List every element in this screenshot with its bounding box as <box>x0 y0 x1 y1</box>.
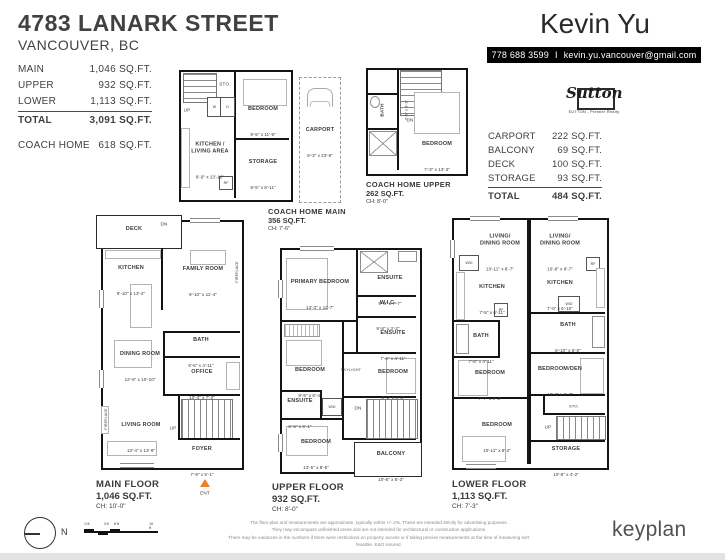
coach-main-label: COACH HOME MAIN 356 SQ.FT. CH: 7'-6" <box>268 207 346 233</box>
wall <box>163 331 165 358</box>
wall <box>234 72 236 198</box>
row-value: 93 SQ.FT. <box>557 173 602 184</box>
compass-icon <box>24 517 56 549</box>
room-label-bedroom: BEDROOM 7'-7" x 9'-3" <box>475 351 505 401</box>
wall <box>543 413 605 415</box>
row-label: CARPORT <box>488 131 536 142</box>
wall <box>342 320 344 440</box>
row-label: TOTAL <box>18 115 52 126</box>
room-label-living-dining: LIVING/ DINING ROOM 10'-11" x 8'-7" <box>480 214 520 271</box>
desk-icon <box>226 362 240 390</box>
room-label-office: OFFICE 10'-3" x 7'-3" <box>189 350 215 400</box>
washer-dryer-icon: W/D <box>459 255 479 271</box>
storage-annotation: STO. <box>219 82 230 87</box>
keyplan-wordmark: keyplan <box>612 518 686 541</box>
scale-tick-label: 0 ft <box>84 522 89 526</box>
area-row-upper: UPPER932 SQ.FT. <box>18 80 152 91</box>
window-marker <box>190 218 220 223</box>
compass-north-label: N <box>61 527 68 537</box>
up-annotation: UP <box>184 108 191 113</box>
dryer-icon: D <box>220 97 235 117</box>
row-value: 618 SQ.FT. <box>98 140 152 151</box>
room-label-storage: STORAGE 10'-8" x 4'-2" <box>552 427 581 477</box>
scale-bar: 0 ft 3 ft 6 ft 10 ft <box>84 522 158 536</box>
contact-bar: 778 688 3599 I kevin.yu.vancouver@gmail.… <box>487 47 701 63</box>
main-floor-label: MAIN FLOOR 1,046 SQ.FT. CH: 10'-0" <box>96 479 159 511</box>
lower-floor-label: LOWER FLOOR 1,113 SQ.FT. CH: 7'-3" <box>452 479 527 511</box>
row-value: 484 SQ.FT. <box>552 191 602 202</box>
area-row-carport: CARPORT222 SQ.FT. <box>488 131 602 142</box>
contact-separator: I <box>555 50 558 60</box>
scale-tick-label: 10 ft <box>149 522 155 530</box>
storage-annotation: STO. <box>569 404 579 409</box>
area-row-balcony: BALCONY69 SQ.FT. <box>488 145 602 156</box>
area-row-total-right: TOTAL484 SQ.FT. <box>488 191 602 202</box>
window-marker <box>450 240 455 258</box>
floorplan-sheet: 4783 LANARK STREET VANCOUVER, BC Kevin Y… <box>0 0 725 560</box>
row-label: MAIN <box>18 64 44 75</box>
wall <box>163 356 165 396</box>
dn-annotation: DN <box>160 222 167 227</box>
window-marker <box>300 246 334 251</box>
room-label-primary-bedroom: PRIMARY BEDROOM 13'-3" x 11'-7" <box>291 260 349 310</box>
row-value: 1,113 SQ.FT. <box>90 96 152 107</box>
shower-icon <box>369 131 397 156</box>
window-marker <box>99 370 104 388</box>
wall <box>368 93 399 95</box>
ent-annotation: ENT <box>200 491 210 496</box>
room-label-kitchen: KITCHEN 8'-10" x 13'-2" <box>117 246 145 296</box>
skylight-annotation: SKYLIGHT <box>341 368 361 372</box>
area-row-coach-home: COACH HOME618 SQ.FT. <box>18 140 152 151</box>
row-value: 1,046 SQ.FT. <box>89 64 152 75</box>
disclaimer: The floor plan and measurements are appr… <box>228 519 530 548</box>
table-divider <box>18 111 152 112</box>
entrance-marker-icon <box>200 479 210 487</box>
wall <box>368 128 399 130</box>
row-value: 100 SQ.FT. <box>552 159 602 170</box>
scale-tick-label: 6 ft <box>114 522 119 526</box>
row-value: 69 SQ.FT. <box>557 145 602 156</box>
kitchen-counter-icon <box>596 268 605 308</box>
area-row-total: TOTAL3,091 SQ.FT. <box>18 115 152 126</box>
disclaimer-line: The floor plan and measurements are appr… <box>228 519 530 526</box>
wall <box>527 220 531 464</box>
disclaimer-line: They may encompass unfinished areas and … <box>228 526 530 533</box>
fireplace-annotation: FIREPLACE <box>235 261 239 282</box>
up-annotation: UP <box>170 426 177 431</box>
scale-tick-label: 3 ft <box>104 522 109 526</box>
window-marker <box>470 216 500 221</box>
scale-segment <box>110 529 120 532</box>
row-label: COACH HOME <box>18 140 90 151</box>
window-marker <box>278 434 283 452</box>
row-value: 3,091 SQ.FT. <box>89 115 152 126</box>
row-label: DECK <box>488 159 515 170</box>
room-label-living-room: LIVING ROOM 13'-4" x 13'-9" <box>121 403 160 453</box>
room-label-bath: BATH 7'-9" x 3'-1" <box>361 100 410 120</box>
table-divider <box>488 187 602 188</box>
bathtub-icon <box>456 324 469 354</box>
room-label-bedroom: BEDROOM 7'-3" x 13'-3" <box>422 122 452 172</box>
area-row-lower: LOWER1,113 SQ.FT. <box>18 96 152 107</box>
row-value: 932 SQ.FT. <box>98 80 152 91</box>
up-annotation: UP <box>545 425 552 430</box>
kitchen-counter-icon <box>181 128 190 188</box>
window-marker <box>548 216 578 221</box>
room-label-bedroom: BEDROOM 13'-5" x 8'-5" <box>301 420 331 470</box>
sutton-logo: Sutton <box>566 84 622 102</box>
washer-dryer-icon: W/D <box>322 398 342 416</box>
scale-segment <box>98 532 108 535</box>
row-label: STORAGE <box>488 173 536 184</box>
scale-segment <box>84 529 94 532</box>
wall <box>282 320 358 322</box>
wall <box>543 396 545 414</box>
room-label-kitchen-living: KITCHEN / LIVING AREA 8'-9" x 13'-10" <box>191 122 228 179</box>
wall <box>178 396 180 440</box>
room-label-bedroom: BEDROOM 8'-1" x 8'-3" <box>378 350 408 400</box>
area-row-deck: DECK100 SQ.FT. <box>488 159 602 170</box>
window-marker <box>466 464 496 469</box>
disclaimer-line: There may be variances in the numbers if… <box>228 534 530 549</box>
room-label-kitchen: KITCHEN 7'-5" x 6'-11" <box>479 265 505 315</box>
upper-floor-label: UPPER FLOOR 932 SQ.FT. CH: 8'-0" <box>272 482 344 514</box>
row-label: LOWER <box>18 96 56 107</box>
area-row-main: MAIN1,046 SQ.FT. <box>18 64 152 75</box>
room-label-family-room: FAMILY ROOM 9'-10" x 11'-4" <box>183 247 223 297</box>
agent-email: kevin.yu.vancouver@gmail.com <box>564 50 697 60</box>
room-label-balcony: BALCONY 10'-6" x 6'-3" <box>377 432 406 482</box>
room-label-carport: CARPORT 9'-3" x 23'-9" <box>305 107 336 159</box>
room-label-foyer: FOYER 7'-9" x 5'-1" <box>190 427 213 477</box>
window-marker <box>278 280 283 298</box>
kitchen-counter-icon <box>456 272 465 320</box>
area-row-storage: STORAGE93 SQ.FT. <box>488 173 602 184</box>
room-label-bedroom: BEDROOM 10'-11" x 8'-2" <box>482 403 512 453</box>
wall <box>161 248 163 310</box>
sutton-tagline: SUTTON - Premier Realty <box>560 110 628 114</box>
closet-icon <box>284 324 320 337</box>
row-label: UPPER <box>18 80 54 91</box>
agent-phone: 778 688 3599 <box>492 50 549 60</box>
room-label-storage: STORAGE 9'-5" x 8'-11" <box>249 140 278 190</box>
room-label-bedroom: BEDROOM 9'-5" x 11'-9" <box>248 87 278 137</box>
room-label-dining-room: DINING ROOM 12'-6" x 10'-10" <box>120 332 160 382</box>
page-edge <box>0 553 725 560</box>
room-label-bath: BATH 6'-10" x 5'-0" <box>555 303 581 353</box>
bed-icon <box>580 358 604 394</box>
keyplan-logo: keyplan <box>612 518 725 542</box>
agent-name: Kevin Yu <box>488 8 702 40</box>
coach-upper-label: COACH HOME UPPER 262 SQ.FT. CH: 8'-0" <box>366 180 451 206</box>
bathtub-icon <box>592 316 605 348</box>
dn-annotation: DN <box>354 406 361 411</box>
fireplace-annotation: FIREPLACE <box>104 408 108 429</box>
property-city: VANCOUVER, BC <box>18 37 139 53</box>
row-label: TOTAL <box>488 191 520 202</box>
scale-line <box>84 531 158 533</box>
window-marker <box>120 463 154 468</box>
row-label: BALCONY <box>488 145 535 156</box>
room-label-bedroom-den: BEDROOM/DEN 10'-8" x 9'-7" <box>538 347 582 397</box>
property-address: 4783 LANARK STREET <box>18 10 279 37</box>
window-marker <box>99 290 104 308</box>
wall <box>356 250 358 352</box>
row-value: 222 SQ.FT. <box>552 131 602 142</box>
